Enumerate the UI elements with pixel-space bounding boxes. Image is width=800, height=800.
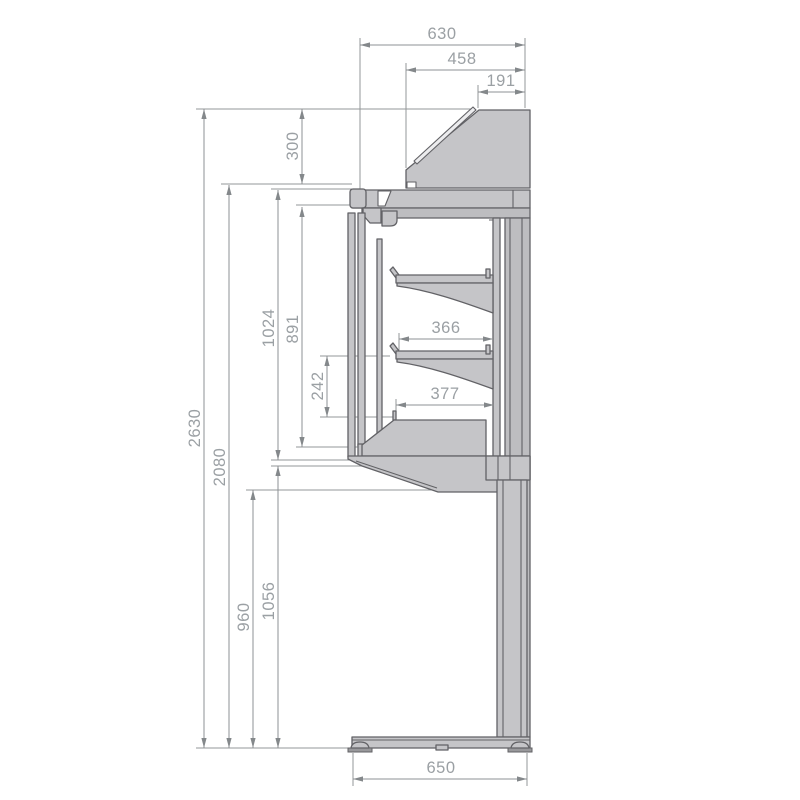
canopy-notch	[407, 182, 416, 188]
back-wall	[493, 218, 500, 458]
label-630: 630	[427, 25, 456, 43]
label-2630: 2630	[186, 409, 204, 448]
rear-bottom-block	[486, 456, 530, 480]
label-891: 891	[284, 314, 302, 343]
foot-right	[511, 742, 529, 748]
front-glass-mid	[358, 213, 365, 446]
label-1056: 1056	[260, 582, 278, 621]
hinge-block	[363, 208, 381, 223]
shelf-middle	[390, 343, 493, 389]
label-377: 377	[430, 385, 459, 403]
label-960: 960	[235, 602, 253, 631]
label-650: 650	[426, 759, 455, 777]
front-top-cap	[350, 189, 366, 208]
canopy	[406, 110, 530, 188]
technical-drawing: 630 458 191 366 377 650 300 2630 2080 10…	[0, 0, 800, 800]
label-458: 458	[447, 50, 476, 68]
label-242: 242	[309, 371, 327, 400]
label-2080: 2080	[211, 448, 229, 487]
front-glass-inner	[377, 239, 382, 445]
shelf-upper	[390, 267, 493, 313]
rear-leg	[497, 480, 527, 737]
base-clip	[436, 745, 448, 750]
lamp-block	[382, 211, 397, 226]
foot-left	[351, 742, 369, 748]
label-300: 300	[284, 131, 302, 160]
label-366: 366	[431, 319, 460, 337]
cabinet-body	[348, 107, 532, 752]
label-1024: 1024	[260, 309, 278, 348]
drawing-canvas: 630 458 191 366 377 650 300 2630 2080 10…	[0, 0, 800, 800]
front-glass-outer	[348, 213, 355, 457]
deck-front-lip	[393, 411, 396, 420]
label-191: 191	[486, 72, 515, 90]
